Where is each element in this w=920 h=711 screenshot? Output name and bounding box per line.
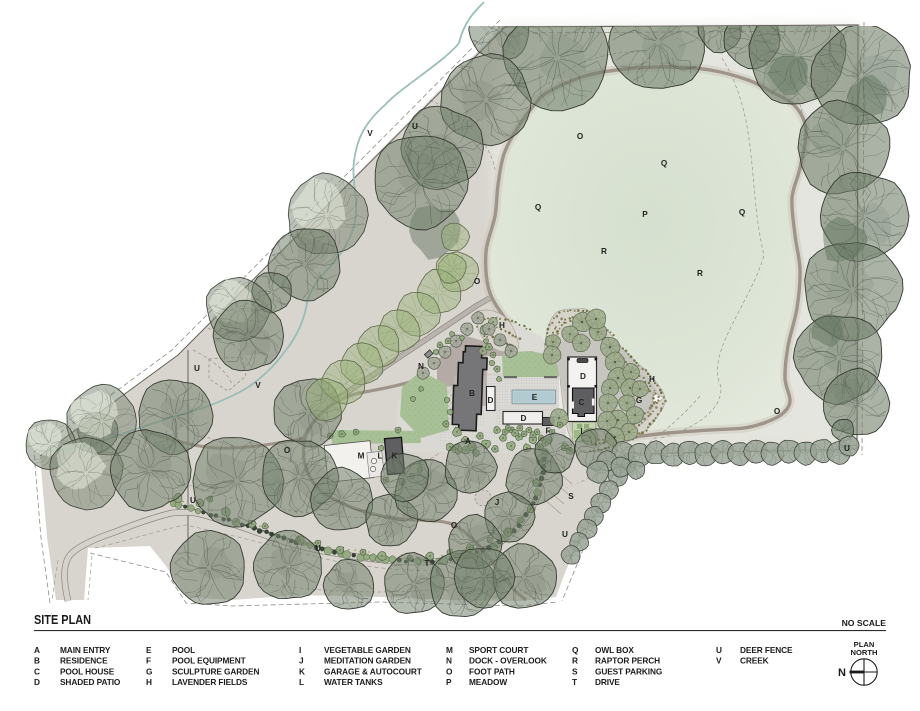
svg-text:N: N xyxy=(446,656,452,666)
svg-text:J: J xyxy=(299,656,304,666)
svg-text:VEGETABLE GARDEN: VEGETABLE GARDEN xyxy=(324,645,411,655)
svg-text:C: C xyxy=(579,398,585,407)
svg-text:SHADED PATIO: SHADED PATIO xyxy=(60,677,121,687)
svg-text:MAIN ENTRY: MAIN ENTRY xyxy=(60,645,111,655)
svg-text:B: B xyxy=(34,656,40,666)
svg-text:D: D xyxy=(488,396,494,405)
svg-text:K: K xyxy=(392,452,398,461)
svg-text:O: O xyxy=(446,666,453,676)
svg-text:U: U xyxy=(562,530,568,539)
svg-text:WATER TANKS: WATER TANKS xyxy=(324,677,383,687)
svg-text:A: A xyxy=(465,437,471,446)
svg-text:DEER FENCE: DEER FENCE xyxy=(740,645,793,655)
svg-text:K: K xyxy=(299,666,305,676)
svg-text:B: B xyxy=(469,389,475,398)
svg-text:D: D xyxy=(521,414,527,423)
svg-text:U: U xyxy=(844,444,850,453)
svg-text:A: A xyxy=(34,645,40,655)
svg-text:H: H xyxy=(649,375,655,384)
svg-text:H: H xyxy=(499,321,505,330)
svg-text:NO SCALE: NO SCALE xyxy=(842,618,887,628)
svg-text:N: N xyxy=(418,362,424,371)
svg-text:P: P xyxy=(642,210,648,219)
svg-text:J: J xyxy=(495,498,500,507)
svg-text:P: P xyxy=(446,677,452,687)
svg-text:I: I xyxy=(580,427,582,436)
svg-text:C: C xyxy=(34,666,40,676)
svg-text:Q: Q xyxy=(661,159,668,168)
svg-text:U: U xyxy=(315,544,321,553)
svg-text:RAPTOR PERCH: RAPTOR PERCH xyxy=(595,656,660,666)
svg-text:GUEST PARKING: GUEST PARKING xyxy=(595,666,662,676)
svg-text:G: G xyxy=(636,396,642,405)
svg-text:E: E xyxy=(146,645,152,655)
svg-text:NORTH: NORTH xyxy=(851,648,878,657)
svg-text:SPORT COURT: SPORT COURT xyxy=(469,645,528,655)
svg-text:U: U xyxy=(190,496,196,505)
svg-text:FOOT PATH: FOOT PATH xyxy=(469,666,515,676)
svg-text:O: O xyxy=(451,521,458,530)
svg-text:U: U xyxy=(412,122,418,131)
svg-text:Q: Q xyxy=(739,208,746,217)
svg-text:Q: Q xyxy=(572,645,579,655)
svg-text:F: F xyxy=(545,427,550,436)
svg-text:S: S xyxy=(572,666,578,676)
svg-text:O: O xyxy=(774,407,781,416)
svg-text:S: S xyxy=(568,492,574,501)
svg-text:U: U xyxy=(716,645,722,655)
svg-text:SITE PLAN: SITE PLAN xyxy=(34,612,91,627)
svg-text:GARAGE & AUTOCOURT: GARAGE & AUTOCOURT xyxy=(324,666,422,676)
svg-text:OWL BOX: OWL BOX xyxy=(595,645,634,655)
svg-text:RESIDENCE: RESIDENCE xyxy=(60,656,108,666)
svg-text:DOCK - OVERLOOK: DOCK - OVERLOOK xyxy=(469,656,547,666)
svg-text:D: D xyxy=(580,372,586,381)
svg-text:F: F xyxy=(146,656,151,666)
svg-text:POOL EQUIPMENT: POOL EQUIPMENT xyxy=(172,656,246,666)
svg-text:MEDITATION GARDEN: MEDITATION GARDEN xyxy=(324,656,411,666)
svg-text:DRIVE: DRIVE xyxy=(595,677,620,687)
svg-text:O: O xyxy=(474,277,481,286)
svg-text:M: M xyxy=(446,645,453,655)
svg-text:V: V xyxy=(716,656,722,666)
svg-text:H: H xyxy=(146,677,152,687)
svg-text:E: E xyxy=(532,393,538,402)
svg-text:I: I xyxy=(299,645,301,655)
svg-text:M: M xyxy=(358,452,365,461)
svg-text:Q: Q xyxy=(535,203,542,212)
svg-text:G: G xyxy=(146,666,152,676)
svg-text:T: T xyxy=(424,559,429,568)
svg-text:T: T xyxy=(572,677,577,687)
svg-text:V: V xyxy=(255,381,261,390)
svg-text:O: O xyxy=(284,446,291,455)
svg-text:MEADOW: MEADOW xyxy=(469,677,507,687)
svg-text:LAVENDER FIELDS: LAVENDER FIELDS xyxy=(172,677,248,687)
svg-text:SCULPTURE GARDEN: SCULPTURE GARDEN xyxy=(172,666,259,676)
svg-text:R: R xyxy=(697,269,703,278)
svg-text:D: D xyxy=(34,677,40,687)
svg-text:CREEK: CREEK xyxy=(740,656,769,666)
svg-text:POOL HOUSE: POOL HOUSE xyxy=(60,666,115,676)
svg-text:L: L xyxy=(299,677,304,687)
svg-text:R: R xyxy=(572,656,578,666)
svg-text:O: O xyxy=(577,132,584,141)
svg-text:V: V xyxy=(367,129,373,138)
svg-text:R: R xyxy=(601,247,607,256)
svg-text:U: U xyxy=(194,364,200,373)
svg-text:L: L xyxy=(377,452,382,461)
svg-text:N: N xyxy=(838,667,846,679)
svg-text:POOL: POOL xyxy=(172,645,195,655)
